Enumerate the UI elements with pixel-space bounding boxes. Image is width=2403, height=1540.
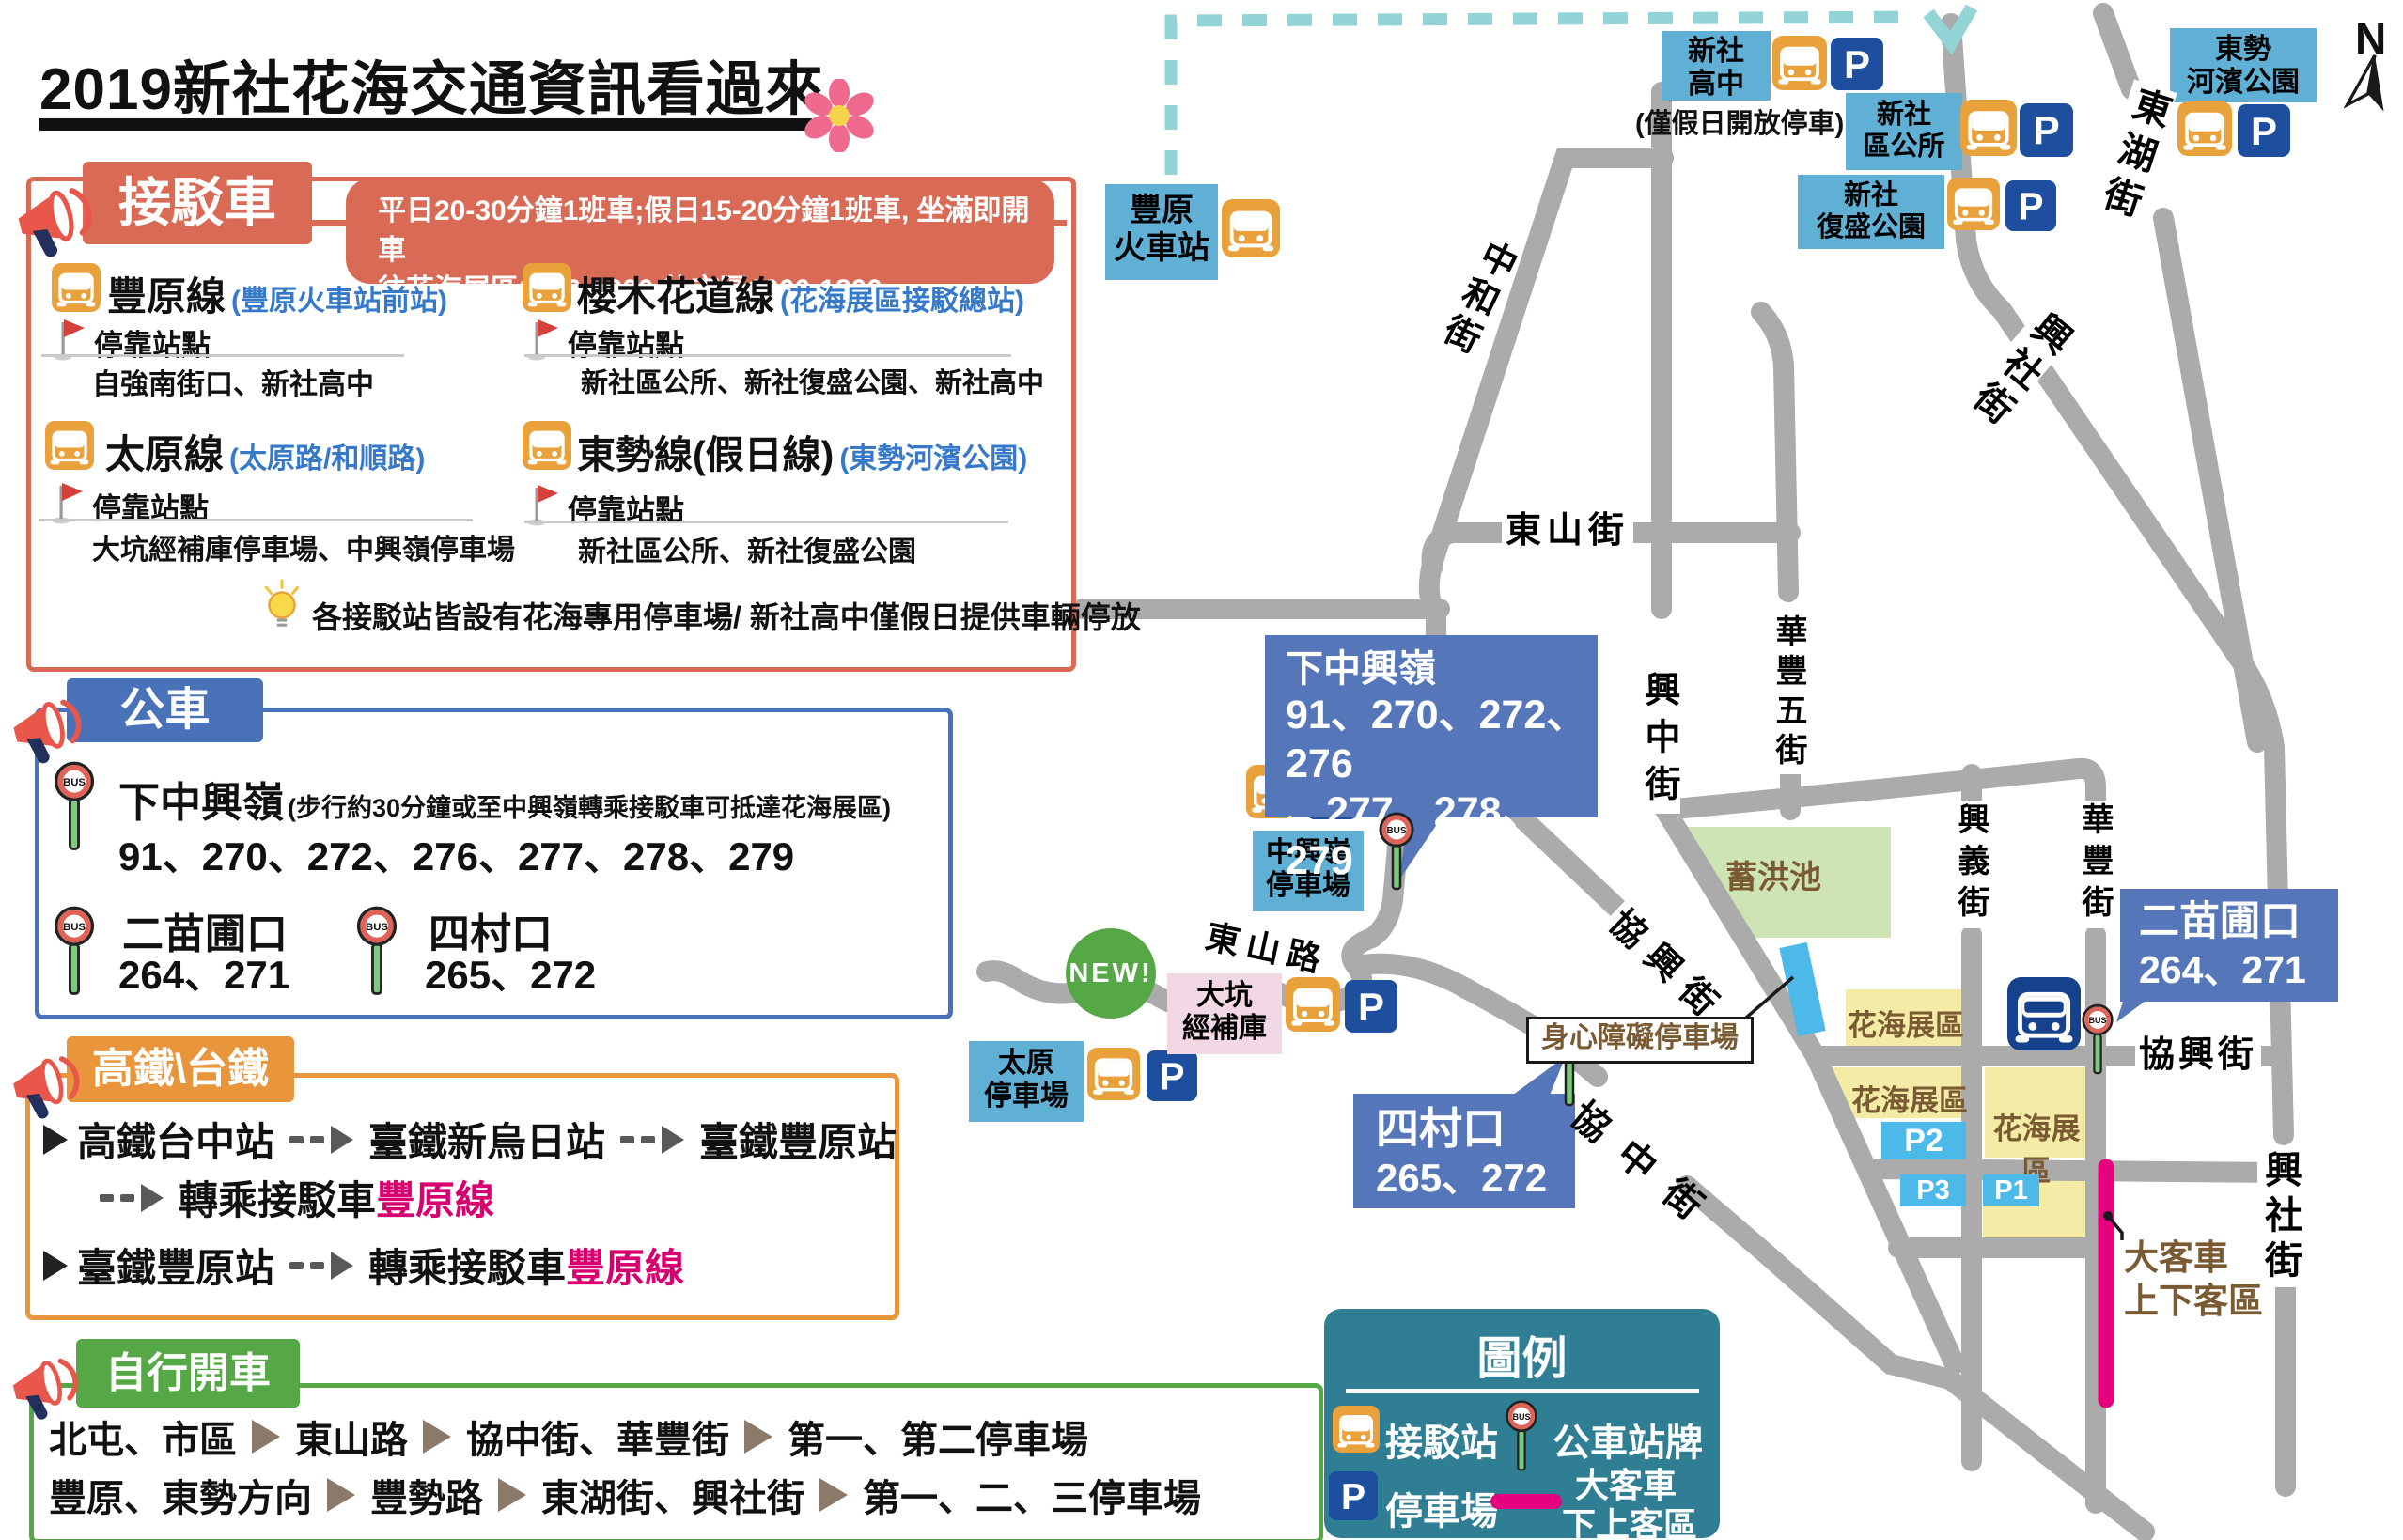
parking-icon: [1831, 38, 1883, 90]
bus-stop-sub: (步行約30分鐘或至中興嶺轉乘接駁車可抵達花海展區): [288, 787, 891, 824]
drive-step: 豐勢路: [370, 1468, 483, 1522]
shuttle-bus-icon: [1222, 199, 1280, 257]
station-label-fengyuan-train-station: 豐原 火車站: [1105, 184, 1218, 280]
expo-zone-label: 花海展區: [1848, 1002, 1964, 1044]
street-label-xingshe-lower: 興社街: [2257, 1148, 2302, 1287]
station-text: 復盛公園: [1798, 211, 1944, 243]
callout-title: 下中興嶺: [1286, 646, 1598, 692]
flower-icon: [803, 79, 876, 152]
legend-shuttle-label: 接駁站: [1385, 1412, 1498, 1467]
stops-label: 停靠站點: [94, 321, 211, 364]
station-text: 火車站: [1105, 229, 1218, 267]
shuttle-bus-icon: [523, 421, 571, 470]
legend-parking-label: 停車場: [1385, 1481, 1498, 1535]
poster-canvas: P BUS: [0, 0, 2403, 1540]
megaphone-icon: [0, 682, 90, 772]
bus-stop-sign-icon: [2081, 1003, 2114, 1077]
shuttle-bus-icon: [45, 421, 94, 470]
callout-title: 四村口: [1376, 1103, 1575, 1155]
route-name: 櫻木花道線: [577, 265, 774, 322]
station-text: 新社: [1662, 35, 1771, 68]
route-stops: 新社區公所、新社復盛公園: [578, 528, 916, 569]
rail-station: 臺鐵新烏日站: [368, 1111, 605, 1168]
route-title-fengyuan-line: 豐原線 (豐原火車站前站): [107, 265, 447, 322]
shuttle-bus-icon: [523, 263, 571, 312]
street-label-huafengwu: 華豐五街: [1769, 613, 1808, 774]
bus-stop-sign-icon: [53, 761, 96, 853]
drive-step: 東湖街、興社街: [541, 1468, 804, 1522]
parking-icon: [2005, 180, 2056, 231]
station-text: 大坑: [1167, 979, 1282, 1012]
street-label-xiexing-horizontal: 協興街: [2135, 1035, 2261, 1075]
callout-sicunkou: 四村口 265、272: [1353, 1094, 1575, 1208]
shuttle-bus-icon: [1333, 1406, 1380, 1453]
route-title-taiyuan-line: 太原線 (太原路/和順路): [105, 423, 425, 480]
coach-zone-text: 上下客區: [2124, 1280, 2263, 1323]
new-badge: NEW!: [1066, 928, 1156, 1019]
divider: [524, 354, 1011, 357]
station-label-dakeng-depot: 大坑 經補庫: [1167, 973, 1282, 1054]
parking-zone-p3: P3: [1900, 1174, 1966, 1206]
callout-routes: 、277、278、279: [1286, 788, 1598, 885]
rail-transfer: 轉乘接駁車豐原線: [179, 1169, 494, 1226]
page-title: 2019新社花海交通資訊看過來: [39, 41, 824, 126]
shuttle-terminal-bus-icon: [2007, 977, 2081, 1050]
title-underline: [39, 118, 812, 131]
drive-step: 第一、第二停車場: [788, 1409, 1088, 1464]
bullet-triangle-icon: [43, 1125, 68, 1155]
flag-icon: [51, 479, 86, 524]
compass-icon: [2332, 45, 2403, 117]
shuttle-bus-icon: [1772, 36, 1827, 90]
arrow-icon: [819, 1478, 848, 1512]
station-text: 高中: [1662, 68, 1771, 101]
rail-row-1: 高鐵台中站 臺鐵新烏日站 臺鐵豐原站: [43, 1111, 897, 1168]
station-text: 東勢: [2170, 33, 2317, 66]
dashed-arrow-icon: [100, 1184, 164, 1212]
dashed-arrow-icon: [289, 1252, 353, 1280]
stops-label: 停靠站點: [568, 321, 684, 364]
drive-row-2: 豐原、東勢方向 豐勢路 東湖街、興社街 第一、二、三停車場: [49, 1468, 1201, 1522]
bus-stop-name: 下中興嶺: [118, 769, 284, 829]
route-stops: 新社區公所、新社復盛公園、新社高中: [581, 361, 1044, 400]
legend-coach-line: [1490, 1494, 1562, 1509]
dashed-arrow-icon: [289, 1126, 353, 1154]
shuttle-bus-icon: [1947, 178, 2000, 230]
route-stops: 大坑經補庫停車場、中興嶺停車場: [92, 526, 515, 568]
shuttle-header-text: 接駁車: [118, 173, 276, 232]
callout-xiazhongxingling: 下中興嶺 91、270、272、276 、277、278、279: [1265, 635, 1598, 817]
shuttle-bus-icon: [52, 263, 101, 312]
drive-panel-header: 自行開車: [76, 1339, 300, 1408]
drive-row-1: 北屯、市區 東山路 協中街、華豐街 第一、第二停車場: [49, 1409, 1088, 1464]
station-text: 河濱公園: [2170, 66, 2317, 99]
legend-underline: [1346, 1389, 1699, 1393]
bus-routes: 265、272: [425, 943, 596, 1001]
lightbulb-icon: [257, 579, 306, 633]
disabled-parking-label: 身心障礙停車場: [1526, 1017, 1754, 1064]
station-text: 太原: [969, 1047, 1084, 1080]
station-text: 區公所: [1846, 131, 1962, 163]
station-label-taiyuan-parking: 太原 停車場: [969, 1041, 1084, 1122]
megaphone-icon: [4, 169, 101, 267]
callout-title: 二苗圃口: [2139, 898, 2338, 947]
disabled-parking-strip: [1793, 945, 1812, 1034]
line-name: 豐原線: [566, 1246, 684, 1290]
bus-routes: 264、271: [118, 943, 289, 1001]
drive-step: 北屯、市區: [49, 1409, 237, 1464]
rail-station: 臺鐵豐原站: [77, 1237, 274, 1294]
shuttle-bus-icon: [1286, 977, 1340, 1032]
drive-step: 豐原、東勢方向: [49, 1468, 312, 1522]
station-text: 新社: [1846, 99, 1962, 131]
bus-stop-sign-icon: [1504, 1400, 1539, 1473]
rail-panel-header: 高鐵\台鐵: [67, 1036, 294, 1102]
rail-station: 高鐵台中站: [77, 1111, 274, 1168]
rail-station: 臺鐵豐原站: [699, 1111, 897, 1168]
arrow-icon: [327, 1478, 355, 1512]
line-name: 豐原線: [376, 1178, 494, 1222]
bus-stop-sign-icon: [53, 906, 96, 998]
street-label-huafeng: 華豐街: [2075, 801, 2114, 928]
station-label-xinshe-district-office: 新社 區公所: [1846, 93, 1962, 170]
shuttle-bus-icon: [1087, 1048, 1140, 1100]
bus-entry-xiazhongxingling: 下中興嶺 (步行約30分鐘或至中興嶺轉乘接駁車可抵達花海展區): [118, 769, 891, 829]
street-label-xingyi: 興義街: [1951, 801, 1990, 928]
drive-step: 第一、二、三停車場: [863, 1468, 1201, 1522]
route-sub: (太原路/和順路): [229, 435, 425, 476]
route-name: 東勢線(假日線): [577, 423, 834, 479]
rail-transfer: 轉乘接駁車豐原線: [368, 1237, 684, 1294]
route-title-yingmu-line: 櫻木花道線 (花海展區接駁總站): [577, 265, 1024, 322]
station-label-xinshe-fusheng-park: 新社 復盛公園: [1798, 175, 1944, 249]
coach-zone-text: 大客車: [2124, 1237, 2263, 1280]
drive-step: 東山路: [295, 1409, 408, 1464]
station-text: 停車場: [969, 1080, 1084, 1112]
route-title-dongshi-line: 東勢線(假日線) (東勢河濱公園): [577, 423, 1027, 479]
divider: [41, 354, 404, 357]
station-text: 經補庫: [1167, 1012, 1282, 1045]
arrow-icon: [423, 1420, 451, 1454]
shuttle-bus-icon: [1960, 100, 2017, 156]
divider: [39, 519, 473, 521]
route-sub: (東勢河濱公園): [839, 435, 1027, 476]
expo-zone-label: 花海展區: [1851, 1077, 1968, 1119]
parking-icon: [1345, 980, 1397, 1033]
dashed-arrow-icon: [620, 1126, 684, 1154]
callout-routes: 91、270、272、276: [1286, 692, 1598, 788]
transfer-text: 轉乘接駁車: [179, 1178, 376, 1222]
schedule-line1: 平日20-30分鐘1班車;假日15-20分鐘1班車, 坐滿即開車: [378, 192, 1054, 271]
arrow-icon: [498, 1478, 526, 1512]
parking-zone-p1: P1: [1983, 1174, 2039, 1206]
rail-row-2: 臺鐵豐原站 轉乘接駁車豐原線: [43, 1237, 684, 1294]
station-label-xinshe-highschool: 新社 高中: [1662, 31, 1771, 101]
bus-panel-header: 公車: [67, 678, 263, 742]
route-name: 太原線: [105, 423, 224, 480]
flag-icon: [526, 481, 562, 526]
divider: [524, 521, 1008, 523]
highschool-note: (僅假日開放停車): [1635, 101, 1844, 141]
shuttle-tip-text: 各接駁站皆設有花海專用停車場/ 新社高中僅假日提供車輛停放: [312, 594, 1141, 637]
arrow-icon: [252, 1420, 280, 1454]
callout-routes: 264、271: [2139, 947, 2338, 993]
route-stops: 自強南街口、新社高中: [92, 361, 374, 402]
callout-ermiaopu: 二苗圃口 264、271: [2120, 889, 2338, 1002]
route-sub: (豐原火車站前站): [231, 277, 447, 319]
legend-coach-l2: 下上客區: [1562, 1498, 1697, 1540]
bus-header-text: 公車: [119, 685, 210, 735]
street-label-dongshan-st: 東山街: [1502, 511, 1633, 551]
station-label-dongshi-riverside-park: 東勢 河濱公園: [2170, 28, 2317, 102]
shuttle-bus-icon: [2177, 101, 2232, 156]
drive-header-text: 自行開車: [105, 1350, 271, 1396]
drive-step: 協中街、華豐街: [466, 1409, 729, 1464]
rail-row-1b: 轉乘接駁車豐原線: [94, 1169, 494, 1226]
coach-zone-label: 大客車 上下客區: [2124, 1237, 2263, 1324]
parking-icon: [1329, 1471, 1378, 1520]
parking-icon: [2238, 104, 2290, 157]
route-sub: (花海展區接駁總站): [780, 277, 1024, 319]
bullet-triangle-icon: [43, 1251, 68, 1281]
transfer-text: 轉乘接駁車: [368, 1246, 566, 1290]
legend-title: 圖例: [1324, 1321, 1720, 1387]
station-text: 新社: [1798, 179, 1944, 211]
parking-icon: [2020, 103, 2073, 157]
parking-icon: [1147, 1050, 1197, 1101]
bus-stop-sign-icon: [1378, 812, 1415, 893]
route-name: 豐原線: [107, 265, 226, 322]
callout-routes: 265、272: [1376, 1155, 1575, 1202]
station-text: 豐原: [1105, 192, 1218, 229]
bus-routes: 91、270、272、276、277、278、279: [118, 825, 794, 882]
shuttle-panel-header: 接駁車: [83, 162, 312, 244]
street-label-xingzhong: 興中街: [1637, 669, 1680, 814]
bus-stop-sign-icon: [355, 906, 398, 998]
parking-zone-p2: P2: [1881, 1122, 1966, 1159]
rail-header-text: 高鐵\台鐵: [92, 1046, 269, 1092]
pond-label: 蓄洪池: [1725, 851, 1821, 897]
arrow-icon: [744, 1420, 772, 1454]
